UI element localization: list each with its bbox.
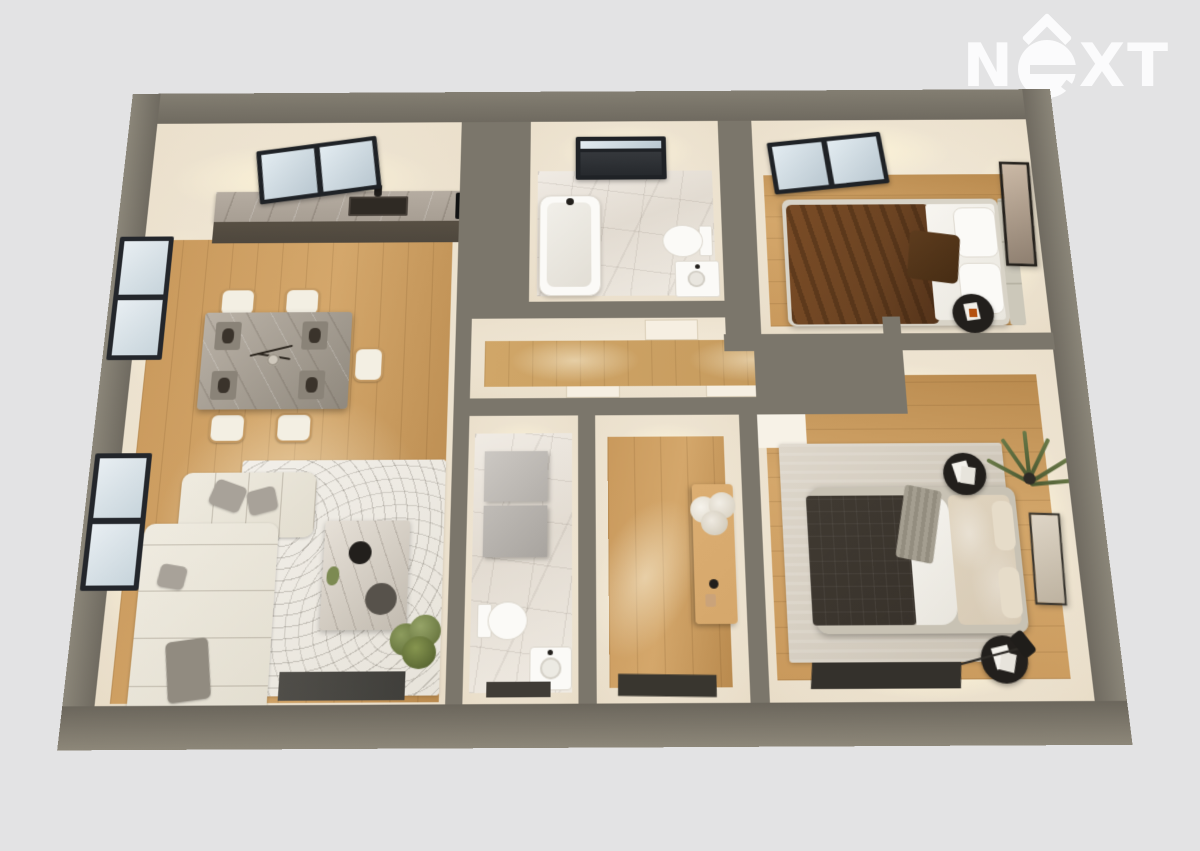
cabinet-lower <box>483 505 548 557</box>
papers-deco <box>960 466 976 485</box>
bathtub <box>539 195 601 296</box>
dining-table <box>197 312 353 410</box>
room-entry <box>595 415 750 704</box>
accent-pillow <box>907 230 960 285</box>
room-bedroom-1 <box>751 119 1053 334</box>
cabinet-upper <box>484 451 548 502</box>
logo-e-bar <box>1030 65 1076 74</box>
bathroom-skylight <box>576 136 667 179</box>
plant-foliage <box>401 636 436 669</box>
window-pane <box>86 524 140 586</box>
coffee-table <box>319 520 410 630</box>
floor-plant <box>389 615 444 670</box>
napkin-deco <box>217 378 230 393</box>
papers-deco <box>999 651 1016 673</box>
sink-tap-icon <box>548 650 553 655</box>
skylight-shaft <box>580 152 661 176</box>
bedroom2-mat <box>811 662 961 689</box>
toilet-bowl <box>662 225 703 257</box>
window-pane <box>93 458 146 518</box>
bathtub-basin <box>547 202 592 287</box>
floor-plan <box>57 89 1132 750</box>
console-deco <box>705 594 716 607</box>
logo-letter-n: N <box>963 36 1015 96</box>
entry-doormat <box>618 674 717 697</box>
napkin-deco <box>221 328 234 343</box>
sofa-seat-section <box>124 523 279 735</box>
logo-house-e-icon <box>1018 22 1076 96</box>
window-pane <box>118 241 168 295</box>
tray-deco <box>364 583 397 615</box>
wc-mat <box>486 682 551 698</box>
skylight-pane <box>772 142 829 190</box>
skylight-pane <box>580 141 661 149</box>
vanity-tap-icon <box>695 264 700 269</box>
next-logo: N XT <box>963 22 1170 96</box>
render-canvas: N XT <box>0 0 1200 851</box>
wc-toilet <box>477 599 526 640</box>
console-deco <box>709 579 719 589</box>
wall-hallway-south <box>453 397 757 416</box>
tv-media-mat <box>278 671 406 700</box>
wall-wc-entry <box>578 415 597 703</box>
wall-art <box>999 162 1038 267</box>
kitchen-counter <box>212 191 460 244</box>
sofa-throw <box>165 637 211 704</box>
wall-bedroom2-notch <box>754 350 890 414</box>
toilet <box>662 223 711 257</box>
plant-pot <box>1023 472 1037 484</box>
dining-chair <box>208 413 247 443</box>
logo-e-notch <box>1061 80 1080 98</box>
wall-outer-bottom <box>57 701 1132 751</box>
skylight-pane <box>261 148 318 200</box>
bowl-deco <box>266 354 280 366</box>
countertop <box>214 191 460 222</box>
sink-basin <box>540 657 561 679</box>
bathroom-vanity <box>675 261 721 298</box>
wall-kitchen-bathroom <box>456 122 531 319</box>
dining-chair <box>275 413 313 443</box>
placemat <box>298 370 326 399</box>
flower-bouquet <box>686 490 741 537</box>
placemat <box>214 322 242 350</box>
table-plant-sprig <box>326 566 340 585</box>
napkin-deco <box>308 328 321 343</box>
vanity-basin <box>687 271 705 288</box>
room-wc <box>462 415 578 704</box>
dark-blanket <box>806 495 917 625</box>
napkin-deco <box>305 377 318 392</box>
logo-letters-xt: XT <box>1079 36 1170 96</box>
skylight-pane <box>320 141 377 192</box>
bath-faucet-icon <box>566 198 574 205</box>
bouquet-bloom <box>701 511 729 536</box>
hallway-door <box>645 319 699 340</box>
candle-deco <box>969 309 978 317</box>
bed-double <box>809 487 1029 635</box>
laundry-cabinet <box>483 451 548 557</box>
wall-bathroom-hallway <box>456 301 760 319</box>
placemat <box>301 321 328 349</box>
skylight-pane <box>827 136 884 184</box>
tray-deco <box>348 541 372 564</box>
cabinet-front <box>212 221 459 244</box>
window-pane <box>112 300 163 355</box>
dining-chair <box>353 347 384 381</box>
wall-outer-top <box>129 89 1053 124</box>
room-bathroom <box>529 121 725 302</box>
room-kitchen-living <box>95 122 462 706</box>
kitchen-sink <box>348 196 408 216</box>
placemat <box>210 371 238 400</box>
toilet-bowl <box>487 601 528 640</box>
